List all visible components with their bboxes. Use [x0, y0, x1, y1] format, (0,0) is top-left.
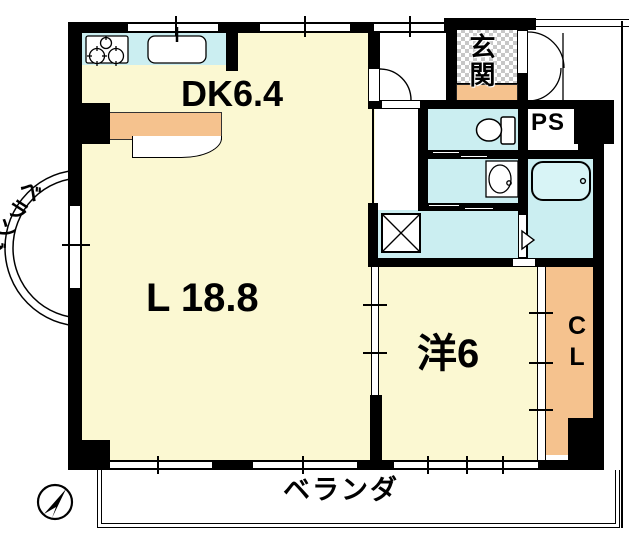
north-arrow-icon	[38, 485, 72, 519]
room-label-balcony-bottom: ベランダ	[283, 477, 399, 504]
toilet-icon	[477, 117, 516, 144]
floor-plan: DK6.4 L 18.8 洋6 CL 玄関 PS ベランダ ベランダ	[0, 0, 629, 542]
bathtub-icon	[532, 162, 590, 200]
room-label-dk: DK6.4	[181, 76, 283, 112]
stove-icon	[86, 36, 128, 66]
kitchen-sink-icon	[148, 27, 206, 63]
folding-door-icon	[522, 231, 534, 249]
symbols-layer	[0, 0, 629, 542]
washbasin-icon	[486, 161, 518, 197]
washing-machine-icon	[382, 214, 420, 252]
room-label-living: L 18.8	[146, 278, 259, 318]
double-entry-door-icon	[528, 32, 564, 101]
room-label-genkan: 玄関	[468, 33, 494, 89]
room-label-pipe-space: PS	[531, 111, 565, 135]
door-swing-icon	[380, 69, 411, 100]
room-label-closet: CL	[564, 312, 589, 374]
room-label-western: 洋6	[417, 334, 479, 374]
